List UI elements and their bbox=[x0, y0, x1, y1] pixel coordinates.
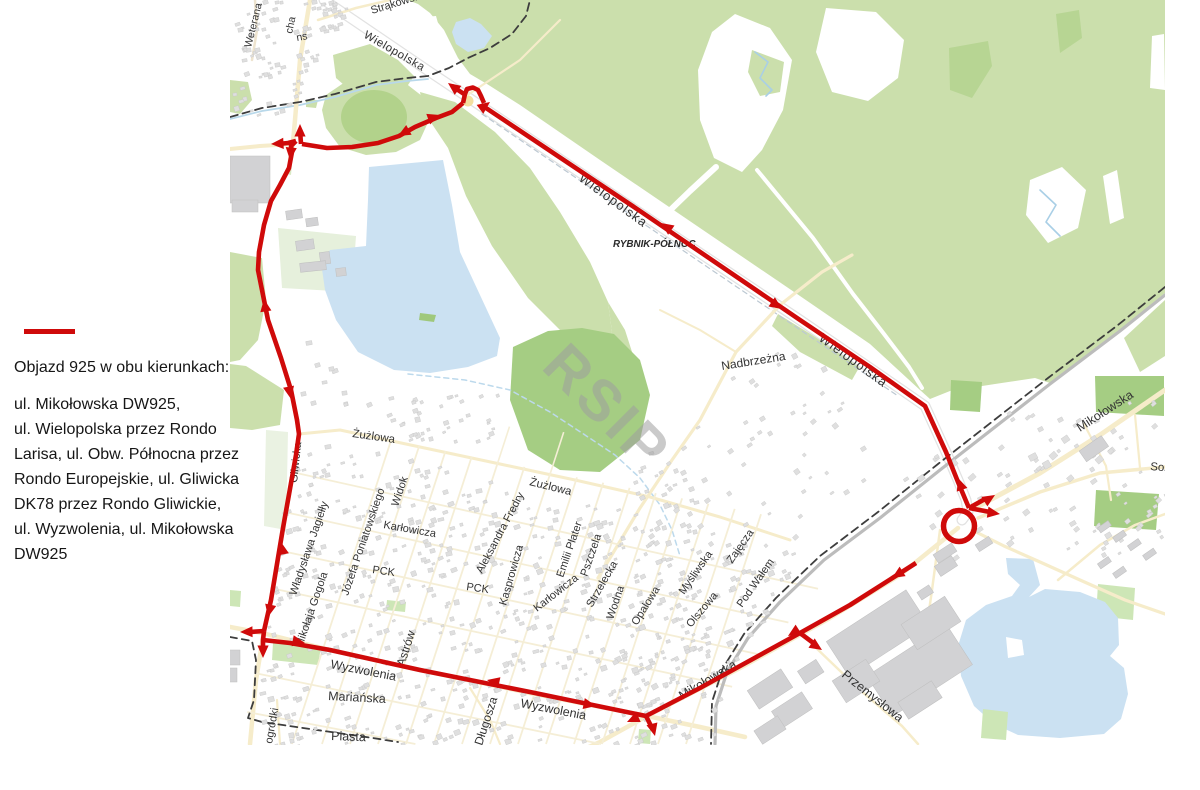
svg-text:ns: ns bbox=[295, 30, 308, 44]
svg-text:Sos: Sos bbox=[1150, 461, 1165, 475]
svg-text:Piasta: Piasta bbox=[331, 729, 366, 744]
